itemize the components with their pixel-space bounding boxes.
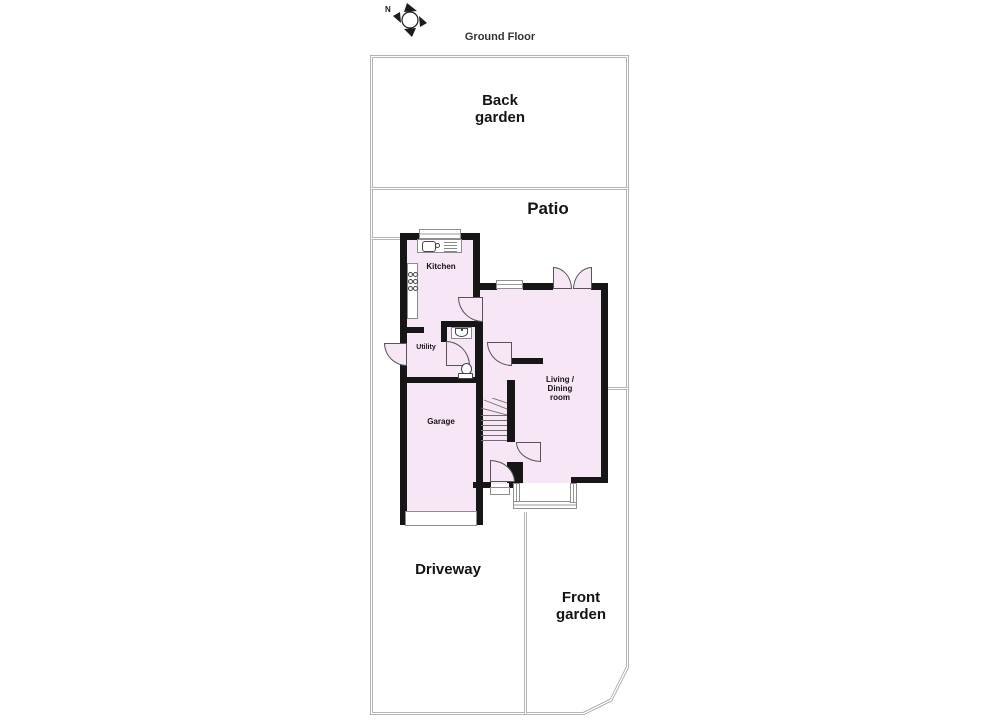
drainer-line <box>444 251 457 252</box>
hob-burner-icon <box>413 279 418 284</box>
page-title: Ground Floor <box>450 31 550 44</box>
bay-window-right <box>570 483 577 503</box>
compass-north-label: N <box>385 5 391 14</box>
floorplan-canvas: N <box>0 0 1000 727</box>
wall-segment <box>400 327 424 333</box>
stair-winders-svg <box>481 398 507 442</box>
hob-burner-icon <box>413 272 418 277</box>
wall-segment <box>507 380 515 442</box>
front-door-step <box>490 487 510 495</box>
front-garden-label: Front garden <box>551 589 611 624</box>
wall-segment <box>601 283 608 483</box>
wall-segment <box>441 321 447 342</box>
compass-icon: N <box>385 3 427 37</box>
sink-tap-icon <box>435 243 440 248</box>
kitchen-label: Kitchen <box>411 262 471 271</box>
wall-segment <box>400 362 407 525</box>
drainer-line <box>444 242 457 243</box>
sink-icon <box>422 241 436 252</box>
wall-segment <box>475 321 483 383</box>
drainer-line <box>444 248 457 249</box>
wall-segment <box>510 358 543 364</box>
garage-label: Garage <box>411 417 471 426</box>
toilet-cistern-icon <box>458 373 473 379</box>
basin-tap-dot <box>461 329 463 331</box>
hallway-floor <box>478 288 523 484</box>
living-dining-label: Living / Dining room <box>541 375 579 403</box>
living-window <box>496 280 523 289</box>
kitchen-window <box>419 229 461 239</box>
drainer-line <box>444 245 457 246</box>
utility-label: Utility <box>406 344 446 352</box>
hob-burner-icon <box>413 286 418 291</box>
patio-label: Patio <box>518 199 578 219</box>
staircase <box>481 398 507 442</box>
wall-segment <box>523 283 553 290</box>
bay-window-bottom <box>513 501 577 509</box>
garage-floor <box>404 380 478 520</box>
wall-segment <box>473 283 497 290</box>
back-garden-label: Back garden <box>470 92 530 127</box>
garage-door <box>405 511 477 526</box>
driveway-label: Driveway <box>408 561 488 578</box>
wall-segment <box>473 482 491 488</box>
